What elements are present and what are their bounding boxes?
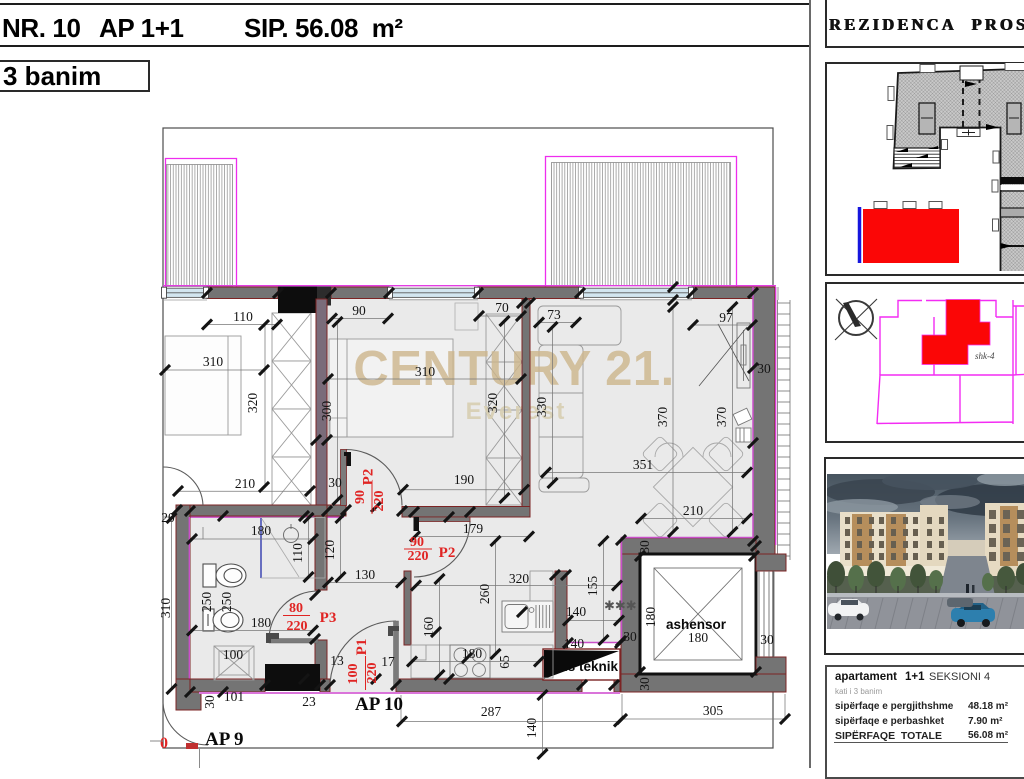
svg-text:73: 73 — [547, 307, 561, 322]
svg-text:250: 250 — [199, 592, 214, 613]
svg-text:180: 180 — [643, 607, 658, 628]
svg-text:220: 220 — [365, 663, 380, 684]
svg-text:140: 140 — [566, 604, 587, 619]
svg-text:65: 65 — [497, 655, 512, 669]
svg-text:70: 70 — [495, 300, 509, 315]
svg-text:P3: P3 — [320, 610, 337, 626]
svg-text:90: 90 — [410, 535, 424, 550]
svg-text:CENTURY 21.: CENTURY 21. — [353, 342, 674, 396]
svg-text:90: 90 — [352, 303, 366, 318]
svg-text:310: 310 — [158, 598, 173, 619]
svg-text:AP 10: AP 10 — [355, 694, 403, 715]
svg-text:30: 30 — [328, 475, 342, 490]
svg-text:220: 220 — [408, 549, 429, 564]
svg-text:210: 210 — [235, 476, 256, 491]
svg-text:140: 140 — [524, 718, 539, 739]
svg-text:0: 0 — [160, 735, 168, 752]
svg-text:30: 30 — [202, 695, 217, 709]
svg-text:P1: P1 — [354, 639, 370, 656]
svg-text:17: 17 — [381, 654, 395, 669]
svg-text:101: 101 — [224, 689, 244, 704]
svg-text:120: 120 — [322, 540, 337, 561]
svg-text:155: 155 — [585, 576, 600, 597]
svg-text:370: 370 — [655, 407, 670, 428]
svg-text:310: 310 — [415, 364, 436, 379]
svg-text:320: 320 — [509, 571, 530, 586]
svg-text:305: 305 — [703, 703, 724, 718]
svg-text:180: 180 — [688, 630, 709, 645]
svg-text:100: 100 — [223, 647, 244, 662]
svg-text:100: 100 — [346, 664, 361, 685]
svg-text:300: 300 — [319, 401, 334, 422]
svg-text:179: 179 — [463, 521, 484, 536]
svg-text:220: 220 — [372, 491, 387, 512]
svg-text:110: 110 — [290, 543, 305, 563]
svg-text:310: 310 — [203, 354, 224, 369]
svg-text:80: 80 — [289, 601, 303, 616]
svg-text:30: 30 — [757, 361, 771, 376]
svg-text:Everest: Everest — [466, 398, 567, 425]
svg-text:330: 330 — [534, 397, 549, 418]
svg-text:130: 130 — [355, 567, 376, 582]
svg-text:30: 30 — [760, 632, 774, 647]
svg-text:180: 180 — [251, 615, 272, 630]
svg-text:P2: P2 — [361, 469, 377, 486]
svg-text:370: 370 — [714, 407, 729, 428]
svg-text:AP 9: AP 9 — [205, 729, 244, 750]
svg-text:P2: P2 — [439, 545, 456, 561]
svg-text:351: 351 — [633, 457, 653, 472]
svg-text:190: 190 — [454, 472, 475, 487]
svg-text:97: 97 — [719, 310, 733, 325]
svg-text:✱✱✱: ✱✱✱ — [604, 598, 637, 613]
svg-text:320: 320 — [245, 393, 260, 414]
svg-text:320: 320 — [485, 393, 500, 414]
svg-text:30: 30 — [637, 677, 652, 691]
svg-text:110: 110 — [233, 309, 253, 324]
svg-text:250: 250 — [219, 592, 234, 613]
svg-text:kus teknik: kus teknik — [552, 659, 619, 674]
svg-text:210: 210 — [683, 503, 704, 518]
svg-text:180: 180 — [251, 523, 272, 538]
svg-text:220: 220 — [287, 619, 308, 634]
svg-text:90: 90 — [353, 490, 368, 504]
svg-text:287: 287 — [481, 704, 502, 719]
svg-text:shk-4: shk-4 — [975, 351, 995, 361]
svg-text:13: 13 — [330, 653, 344, 668]
svg-text:23: 23 — [302, 694, 316, 709]
svg-text:260: 260 — [477, 584, 492, 605]
